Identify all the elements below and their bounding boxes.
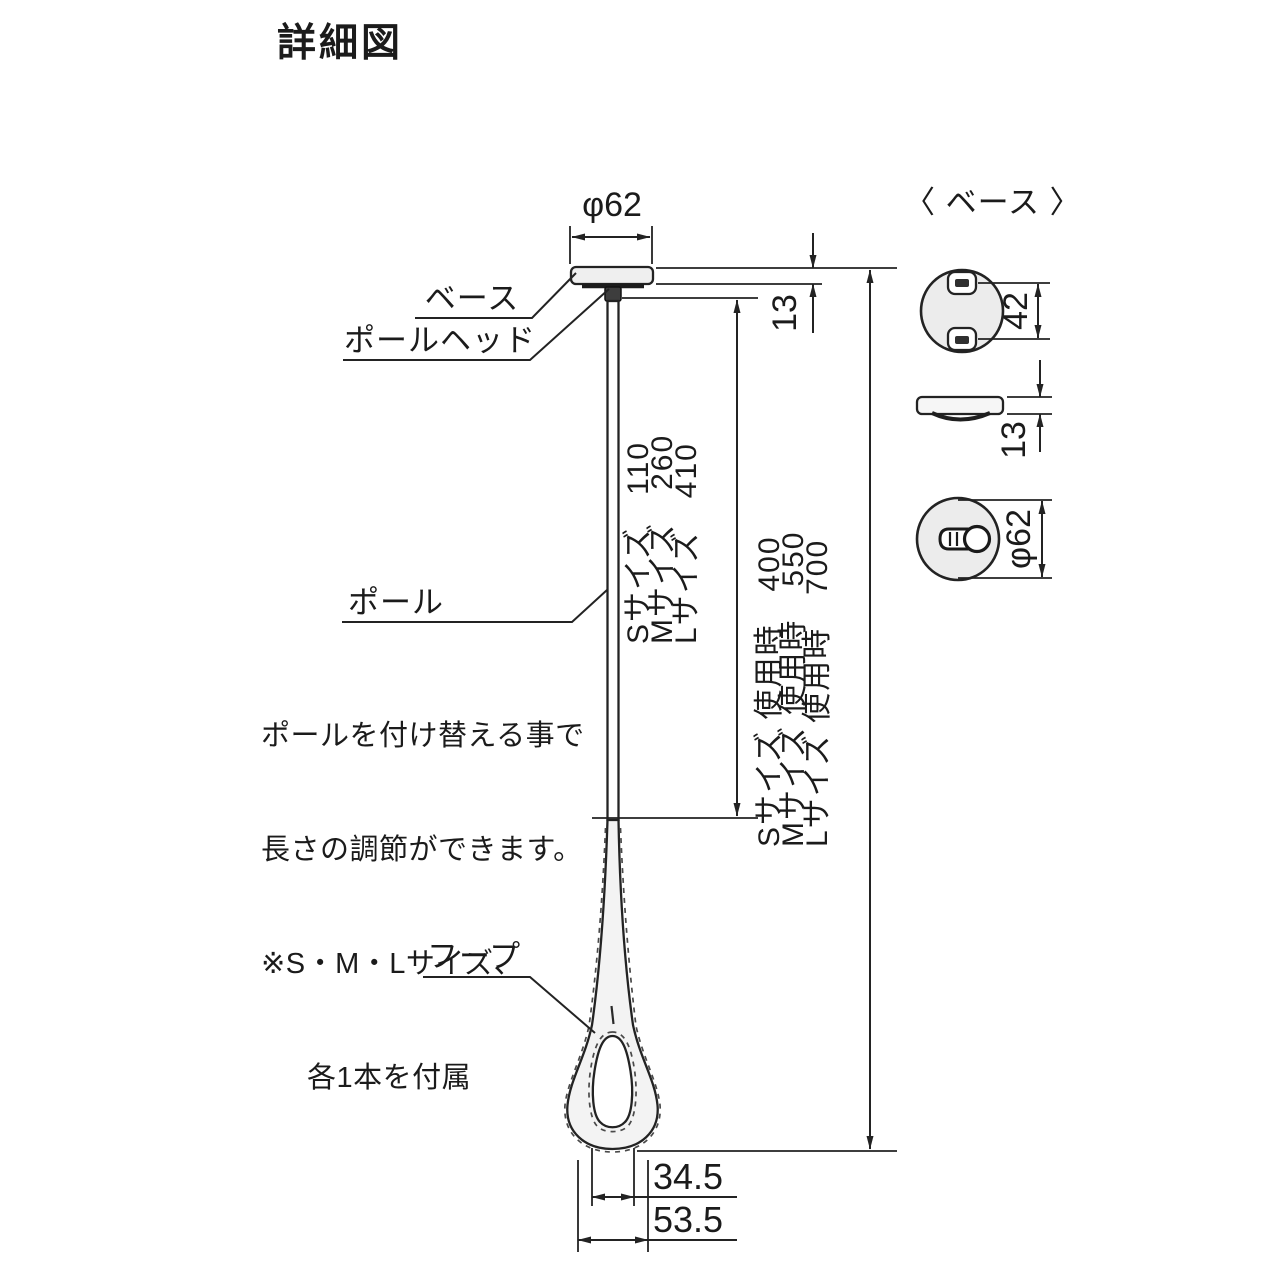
dim-phi62-top: φ62 [582, 186, 642, 224]
drawing-canvas: 詳細図 ポールを付け替える事で 長さの調節ができます。 ※S・M・Lサイズ、 各… [0, 0, 1280, 1280]
dim-screw-pitch-42: 42 [997, 292, 1035, 330]
hoop-shape [565, 820, 660, 1152]
base-detail-heading: 〈 ベース 〉 [904, 185, 1082, 220]
ceiling-base-shape [571, 267, 653, 301]
dim-overall-length-group: Sサイズ 使用時 400 Mサイズ 使用時 550 Lサイズ 使用時 700 [637, 270, 897, 1151]
dim-base-thickness-group: 13 [656, 233, 897, 333]
label-hoop: フープ [427, 939, 521, 974]
label-base: ベース [425, 281, 519, 316]
screw-slot-bottom [955, 336, 969, 344]
dim-base-diameter-phi62-bottom: φ62 [1000, 509, 1038, 569]
base-side-view: 13 [917, 360, 1052, 459]
dim-hoop-width-group: 34.5 53.5 [578, 1148, 737, 1252]
dim-13-base: 13 [766, 294, 804, 332]
dim-base-diameter-group: φ62 [570, 186, 652, 264]
keyhole-circle [965, 527, 990, 552]
main-diagram: φ62 13 Sサイズ 110 Mサイズ 260 Lサイズ 410 [342, 186, 897, 1252]
base-top-view: 42 [921, 270, 1050, 352]
part-labels: ベース ポールヘッド ポール フープ [342, 273, 609, 1033]
dim-hoop-outer-53-5: 53.5 [653, 1199, 723, 1240]
technical-drawing: φ62 13 Sサイズ 110 Mサイズ 260 Lサイズ 410 [0, 0, 1280, 1280]
base-side-outline [917, 397, 1003, 414]
label-pole-head: ポールヘッド [344, 323, 536, 358]
pole-shape [608, 301, 619, 820]
dim-hoop-inner-34-5: 34.5 [653, 1156, 723, 1197]
hoop-inner-opening [593, 1036, 632, 1127]
screw-slot-top [955, 279, 969, 287]
dim-overall-l: Lサイズ 使用時 700 [801, 539, 834, 847]
base-detail-views: 〈 ベース 〉 42 13 [904, 185, 1082, 580]
leader-hoop [423, 977, 595, 1033]
dim-base-thickness-13-side: 13 [995, 421, 1033, 459]
dim-pole-length-l: Lサイズ 410 [670, 442, 703, 644]
base-bottom-view: φ62 [917, 498, 1052, 580]
label-pole: ポール [348, 585, 444, 620]
